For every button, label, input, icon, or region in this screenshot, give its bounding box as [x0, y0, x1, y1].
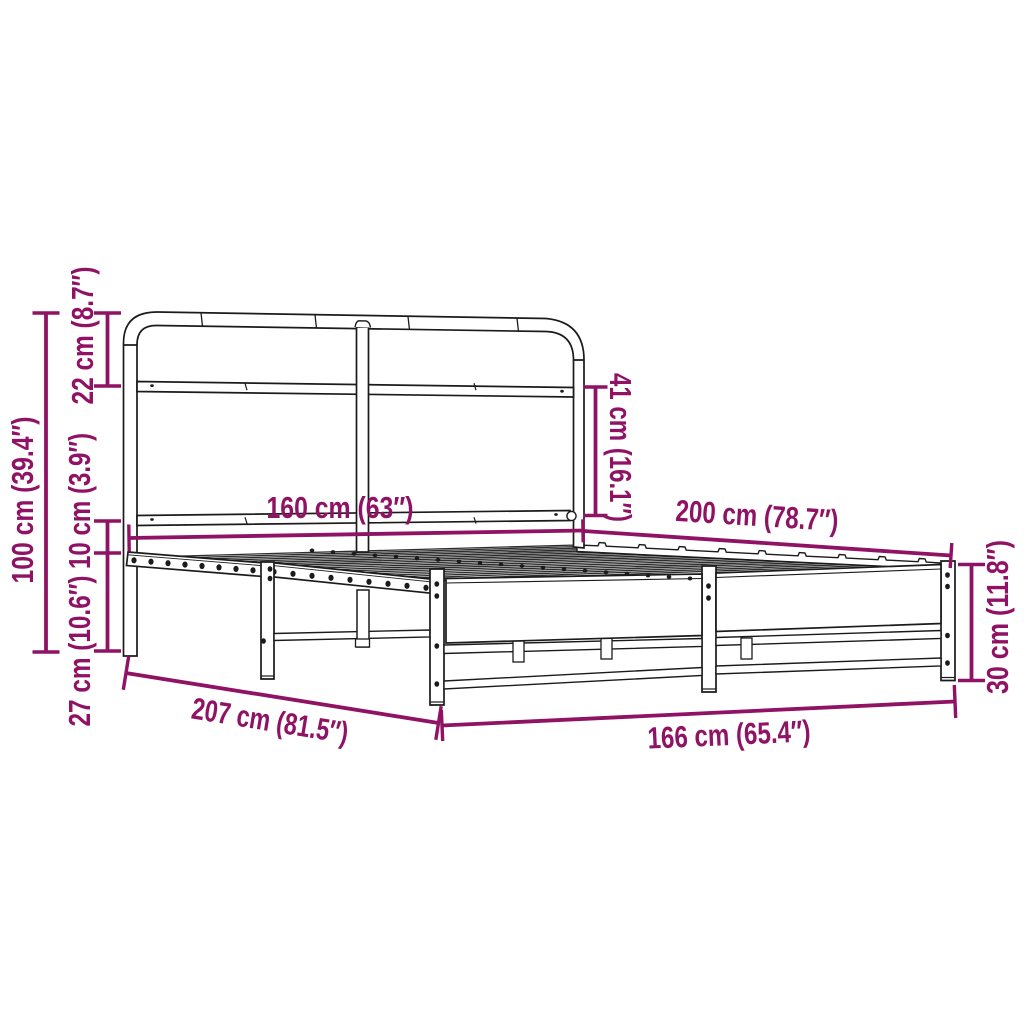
svg-text:22 cm (8.7″): 22 cm (8.7″)	[66, 267, 100, 405]
svg-text:100 cm (39.4″): 100 cm (39.4″)	[6, 417, 40, 584]
svg-text:41 cm (16.1″): 41 cm (16.1″)	[603, 373, 637, 522]
svg-text:10 cm (3.9″): 10 cm (3.9″)	[63, 433, 97, 569]
svg-text:30 cm (11.8″): 30 cm (11.8″)	[981, 540, 1015, 694]
svg-text:27 cm (10.6″): 27 cm (10.6″)	[63, 576, 97, 727]
svg-text:160 cm (63″): 160 cm (63″)	[267, 491, 414, 525]
